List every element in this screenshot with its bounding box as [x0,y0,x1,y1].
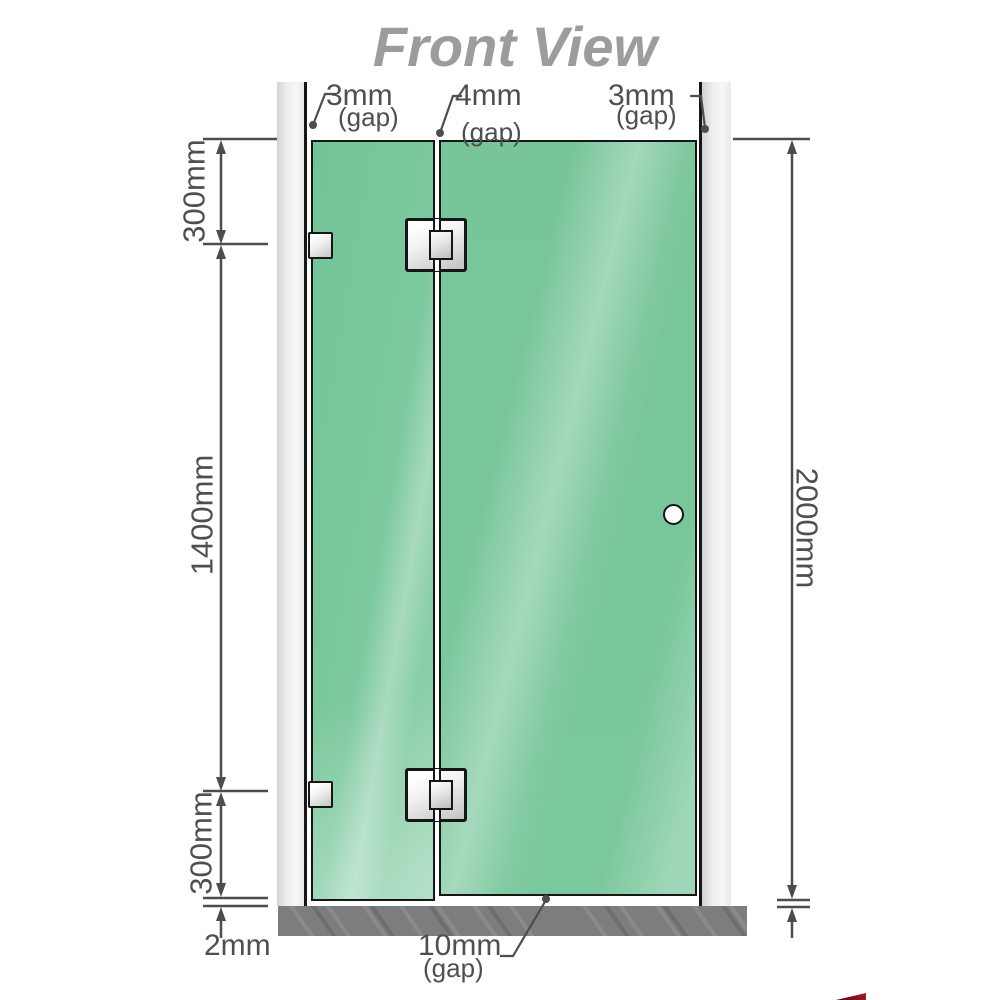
label-segment-bottom: 300mm [186,791,217,894]
label-gap-right-sub: (gap) [616,102,677,128]
label-total-height: 2000mm [792,468,823,589]
label-segment-middle: 1400mm [187,455,218,576]
label-gap-left-sub: (gap) [338,104,399,130]
label-gap-middle-sub: (gap) [461,119,522,145]
gap-leader-lines [309,94,709,956]
label-floor-clearance: 2mm [204,931,271,961]
dimension-lines [0,0,1000,1000]
label-segment-top: 300mm [179,139,210,242]
label-door-floor-gap-sub: (gap) [423,955,484,981]
label-gap-middle: 4mm [455,81,522,111]
shower-screen-front-view-diagram: Front View [0,0,1000,1000]
